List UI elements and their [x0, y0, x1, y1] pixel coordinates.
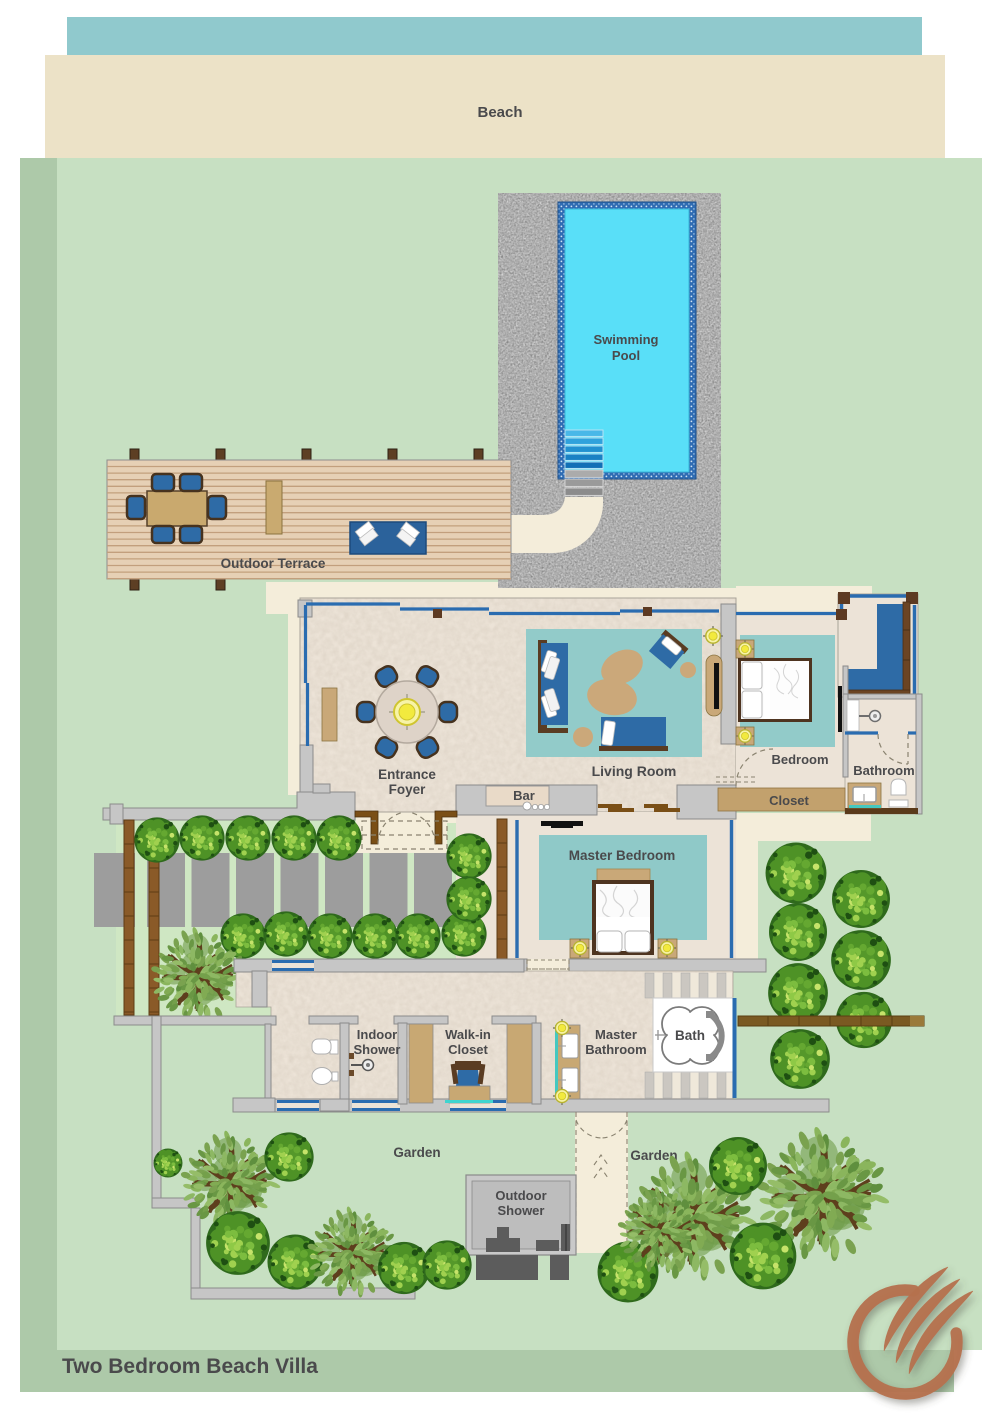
svg-text:Foyer: Foyer: [389, 782, 427, 797]
svg-text:Closet: Closet: [769, 793, 809, 808]
svg-text:Closet: Closet: [448, 1042, 488, 1057]
svg-text:Bathroom: Bathroom: [585, 1042, 646, 1057]
svg-text:Walk-in: Walk-in: [445, 1027, 491, 1042]
svg-text:Bar: Bar: [513, 788, 535, 803]
svg-text:Bedroom: Bedroom: [771, 752, 828, 767]
svg-text:Outdoor: Outdoor: [495, 1188, 546, 1203]
svg-text:Shower: Shower: [498, 1203, 545, 1218]
svg-text:Two Bedroom Beach Villa: Two Bedroom Beach Villa: [62, 1355, 318, 1378]
svg-text:Pool: Pool: [612, 348, 640, 363]
svg-text:Living Room: Living Room: [592, 763, 677, 779]
svg-text:Master Bedroom: Master Bedroom: [569, 848, 676, 863]
svg-text:Outdoor Terrace: Outdoor Terrace: [221, 556, 326, 571]
svg-text:Indoor: Indoor: [357, 1027, 397, 1042]
svg-text:Entrance: Entrance: [378, 767, 436, 782]
svg-text:Master: Master: [595, 1027, 637, 1042]
svg-text:Beach: Beach: [477, 104, 522, 121]
svg-text:Swimming: Swimming: [593, 332, 658, 347]
svg-text:Garden: Garden: [393, 1145, 440, 1160]
svg-text:Bath: Bath: [675, 1028, 705, 1043]
svg-text:Shower: Shower: [354, 1042, 401, 1057]
svg-text:Bathroom: Bathroom: [853, 763, 914, 778]
